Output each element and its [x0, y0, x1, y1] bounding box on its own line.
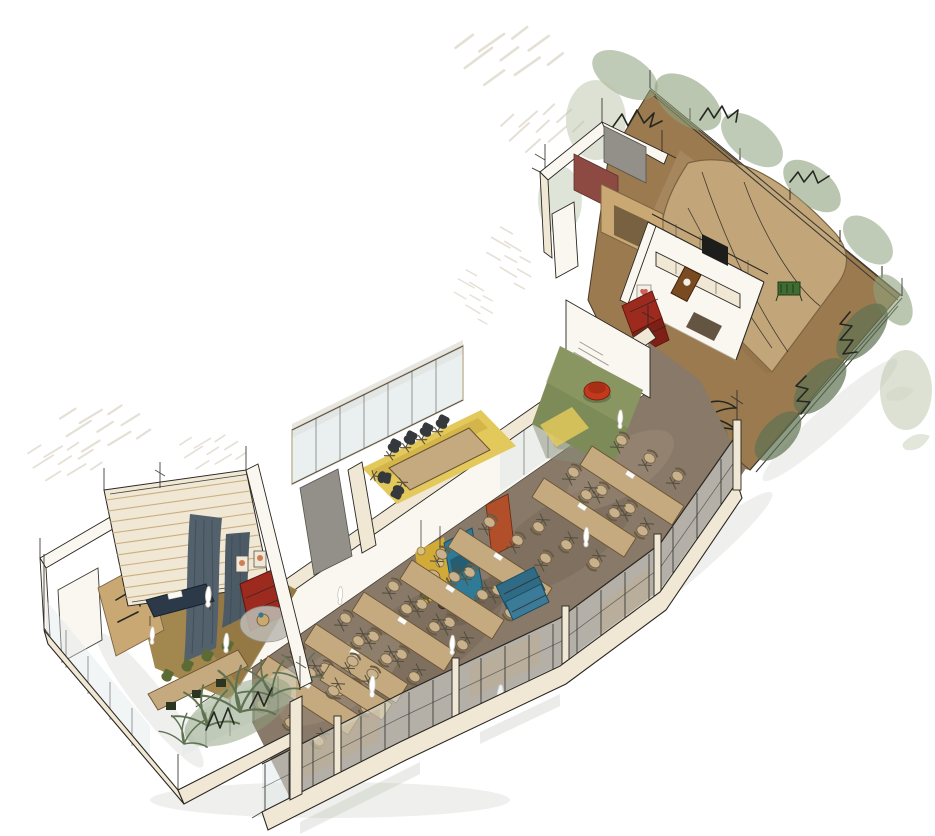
sketch-canvas	[0, 0, 935, 836]
gray-partition-wall	[300, 469, 352, 575]
red-pouf-table	[583, 382, 611, 403]
pencil-hatch-marks	[28, 25, 587, 481]
axonometric-illustration	[0, 0, 935, 836]
